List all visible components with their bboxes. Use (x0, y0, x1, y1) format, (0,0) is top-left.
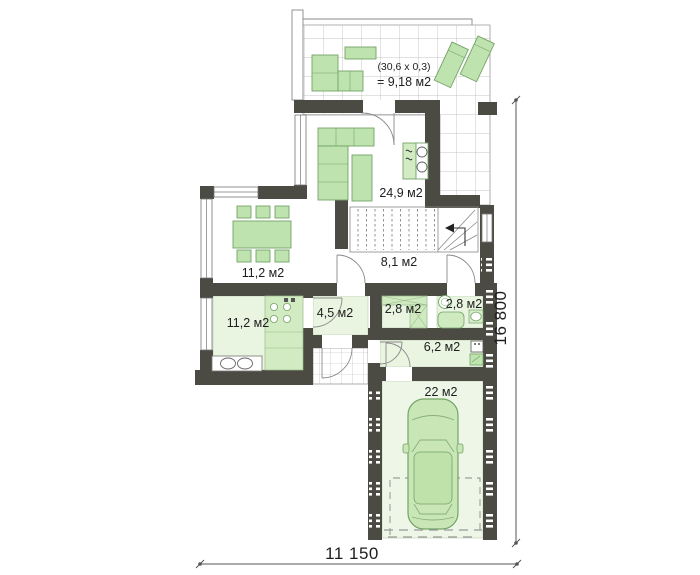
dining-area-label: 11,2 м2 (242, 266, 284, 280)
stairs (350, 207, 478, 252)
door-gap-terrace (363, 100, 395, 113)
living-room-area-label: 24,9 м2 (379, 186, 422, 200)
floor-plan-drawing: (30,6 x 0,3) = 9,18 м2 24,9 м2 8,1 м2 11… (0, 0, 700, 575)
door-gap-kitchen (303, 298, 313, 328)
living-sofa (318, 128, 374, 201)
dining-set (233, 206, 291, 262)
chair (275, 250, 289, 262)
window-dining-left (201, 199, 212, 278)
terrace-area-label: = 9,18 м2 (377, 75, 431, 89)
bathroom-area-label: 2,8 м2 (446, 297, 482, 311)
burner-icon (270, 303, 277, 310)
chair (256, 206, 270, 218)
window-hall-right (482, 214, 492, 242)
boiler-icon (470, 354, 483, 365)
height-dimension-label: 16 800 (491, 291, 510, 346)
burner-icon (283, 315, 290, 322)
burner-icon (270, 315, 277, 322)
bathtub-icon (438, 312, 464, 328)
sink-bowl-icon (417, 162, 427, 172)
kitchen-counter (265, 296, 303, 370)
sink-bowl-icon (221, 358, 236, 369)
door-gap-corridor (337, 283, 365, 296)
mudroom-area-label: 6,2 м2 (424, 340, 460, 354)
pergola-edge (303, 19, 472, 25)
chair (237, 250, 251, 262)
chair (237, 206, 251, 218)
sink-bowl-icon (238, 358, 253, 369)
car-mirror (403, 444, 409, 453)
door-gap-mudroom (368, 341, 380, 363)
kitchen-sink-counter (212, 356, 262, 371)
washing-machine-icon (471, 341, 483, 352)
width-dimension-label: 11 150 (325, 544, 379, 563)
kitchenette-unit (403, 143, 428, 179)
corridor-area-label: 4,5 м2 (317, 306, 353, 320)
burner-icon (283, 303, 290, 310)
garage-area-label: 22 м2 (425, 385, 458, 399)
terrace-column (292, 10, 303, 100)
door-gap-garage (386, 367, 412, 381)
porch-tile-grid (313, 348, 368, 384)
door-gap-entrance (322, 335, 352, 348)
floor-plan-canvas: (30,6 x 0,3) = 9,18 м2 24,9 м2 8,1 м2 11… (0, 0, 700, 575)
door-gap-bathroom (447, 283, 475, 296)
dining-table (233, 221, 291, 248)
window-kitchen-left (201, 298, 212, 350)
closet-area-label: 2,8 м2 (385, 302, 421, 316)
car-mirror (457, 444, 463, 453)
window-dining-top (214, 187, 258, 197)
window-living-left (295, 115, 306, 185)
washbasin-icon (471, 312, 481, 321)
terrace-area-note: (30,6 x 0,3) (377, 61, 430, 73)
kitchen-area-label: 11,2 м2 (227, 316, 269, 330)
car-top-view (403, 399, 463, 529)
sink-bowl-icon (417, 147, 427, 157)
terrace-table (345, 47, 376, 59)
chair (275, 206, 289, 218)
stair-hall-area-label: 8,1 м2 (381, 255, 417, 269)
chair (256, 250, 270, 262)
